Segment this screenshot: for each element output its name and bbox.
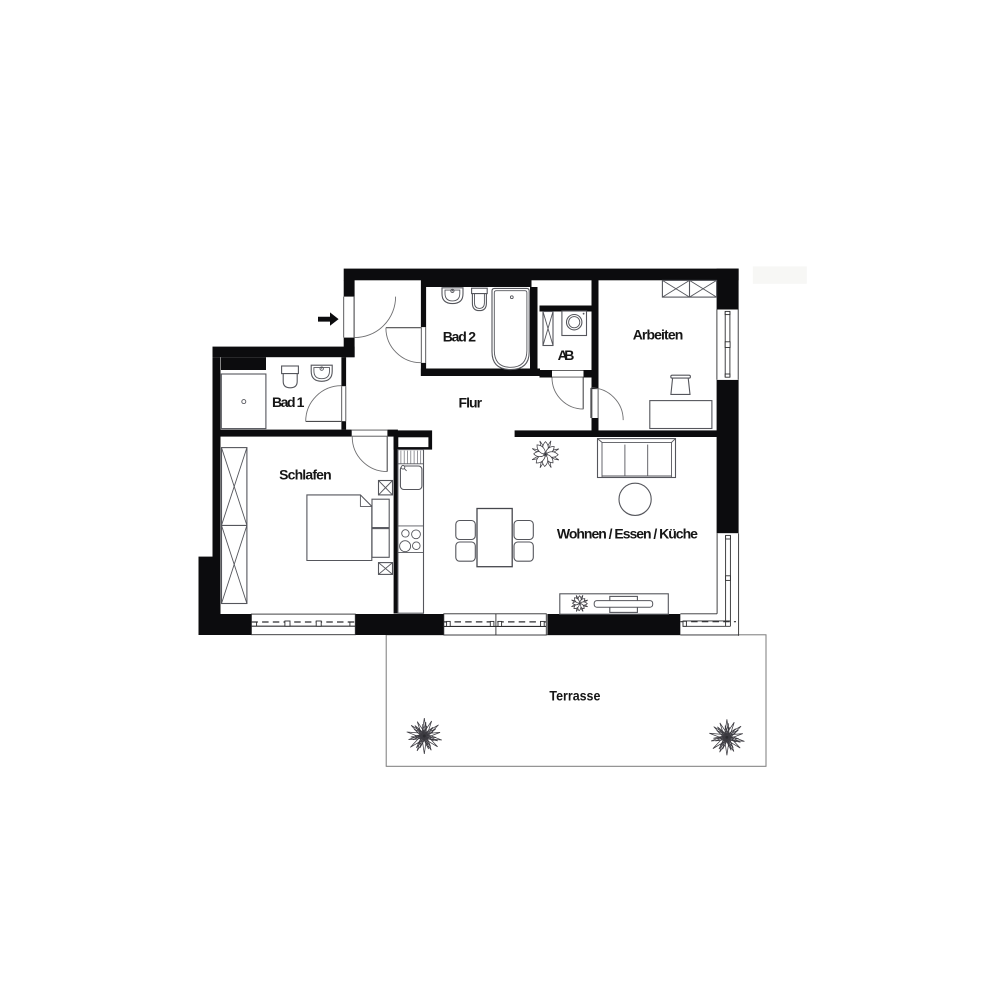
svg-text:Wohnen / Essen / Küche: Wohnen / Essen / Küche xyxy=(557,526,698,542)
svg-text:AB: AB xyxy=(558,347,575,363)
svg-text:Arbeiten: Arbeiten xyxy=(633,327,684,343)
svg-text:Bad 2: Bad 2 xyxy=(443,328,476,344)
svg-text:Terrasse: Terrasse xyxy=(549,687,600,703)
svg-text:Flur: Flur xyxy=(459,394,483,410)
svg-text:Schlafen: Schlafen xyxy=(279,466,332,482)
svg-text:Bad 1: Bad 1 xyxy=(272,394,305,410)
